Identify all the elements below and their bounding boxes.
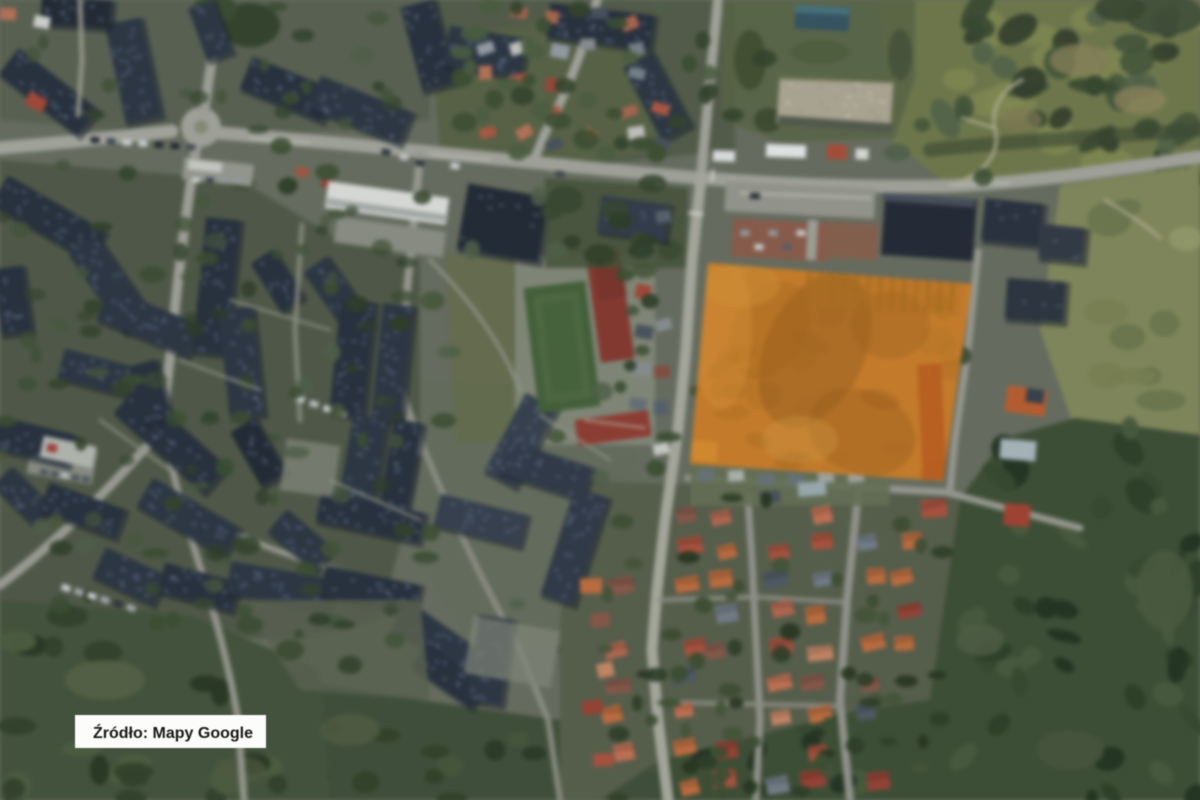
svg-text:Źródło: Mapy Google: Źródło: Mapy Google [93,723,253,742]
